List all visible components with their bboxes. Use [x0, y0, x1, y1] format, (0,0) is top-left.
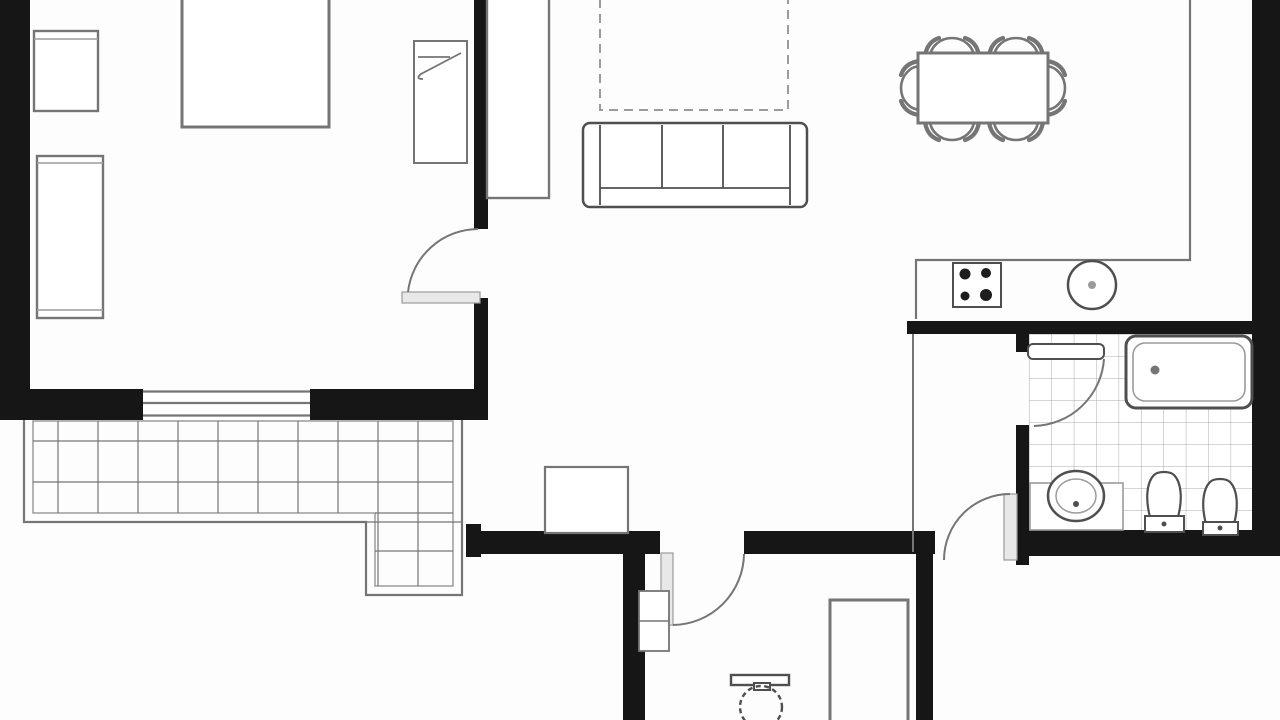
drain: [1151, 366, 1160, 375]
double-bed: [182, 0, 329, 127]
wall-hall-bottom-right: [744, 531, 935, 554]
burner: [980, 289, 992, 301]
wall-bedroom-bottom-left: [0, 389, 145, 420]
kitchen-sink: [1068, 261, 1116, 309]
cooktop: [953, 263, 1001, 307]
burner: [960, 269, 971, 280]
nightstand: [34, 31, 98, 111]
wall-bedroom-right-lower: [474, 298, 488, 420]
wall-bedroom-bottom-right: [310, 389, 488, 420]
faucet: [1073, 501, 1079, 507]
wall-outer-right: [1252, 0, 1280, 556]
bathroom: [1028, 334, 1252, 535]
wall-wc-right: [916, 553, 933, 720]
burner: [961, 292, 970, 301]
tall-cabinet: [487, 0, 549, 198]
wall-kitchen-bathroom: [907, 321, 1280, 334]
floor-plan-image: [0, 0, 1280, 720]
entry-cabinet: [545, 467, 628, 533]
sofa: [583, 123, 807, 207]
door-leaf: [402, 292, 480, 303]
wall-outer-left: [0, 0, 30, 420]
toilet: [1145, 472, 1184, 532]
burner: [981, 268, 991, 278]
door-leaf: [1004, 494, 1017, 560]
bathtub: [1126, 336, 1252, 408]
dining-table: [918, 53, 1048, 123]
bidet: [1203, 479, 1238, 535]
small-cabinet: [639, 591, 669, 651]
single-bed: [414, 41, 467, 163]
wardrobe: [37, 156, 103, 318]
window: [143, 389, 310, 420]
floor-plan-svg: [0, 0, 1280, 720]
wall-hall-bottom-left: [466, 531, 660, 554]
door-leaf: [1028, 344, 1104, 359]
